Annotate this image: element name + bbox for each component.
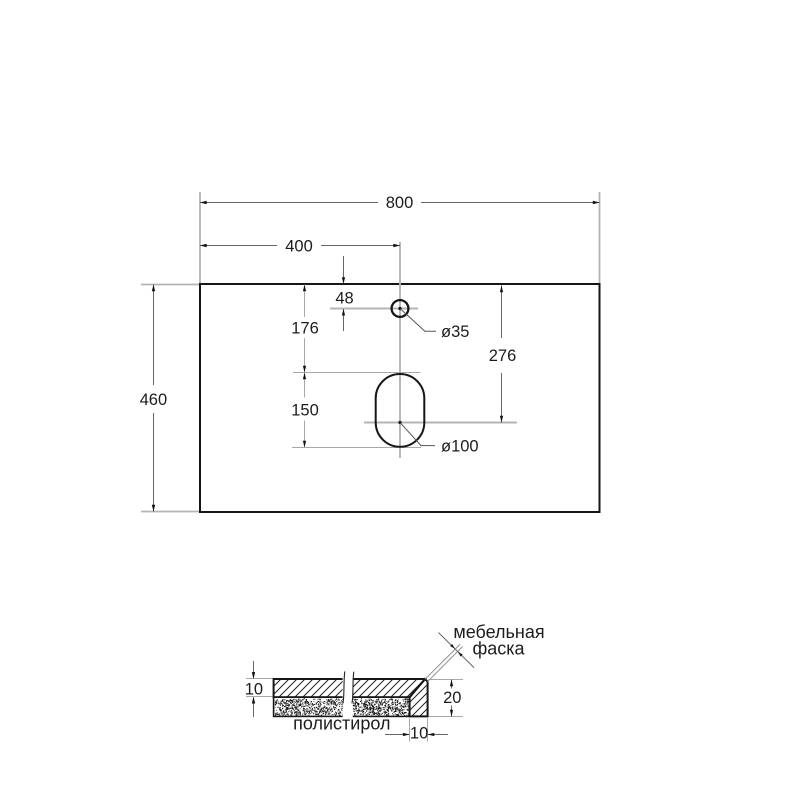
- svg-text:176: 176: [291, 320, 319, 338]
- svg-text:400: 400: [285, 238, 313, 256]
- svg-text:10: 10: [245, 681, 263, 699]
- svg-text:460: 460: [140, 391, 168, 409]
- svg-text:20: 20: [443, 689, 461, 707]
- svg-text:150: 150: [291, 401, 319, 419]
- svg-text:ø100: ø100: [441, 437, 479, 455]
- svg-text:10: 10: [410, 724, 428, 742]
- svg-text:48: 48: [335, 289, 353, 307]
- svg-text:фаска: фаска: [472, 639, 525, 659]
- svg-text:276: 276: [489, 347, 517, 365]
- svg-text:ø35: ø35: [441, 323, 469, 341]
- svg-text:800: 800: [386, 194, 414, 212]
- svg-text:полистирол: полистирол: [293, 713, 390, 733]
